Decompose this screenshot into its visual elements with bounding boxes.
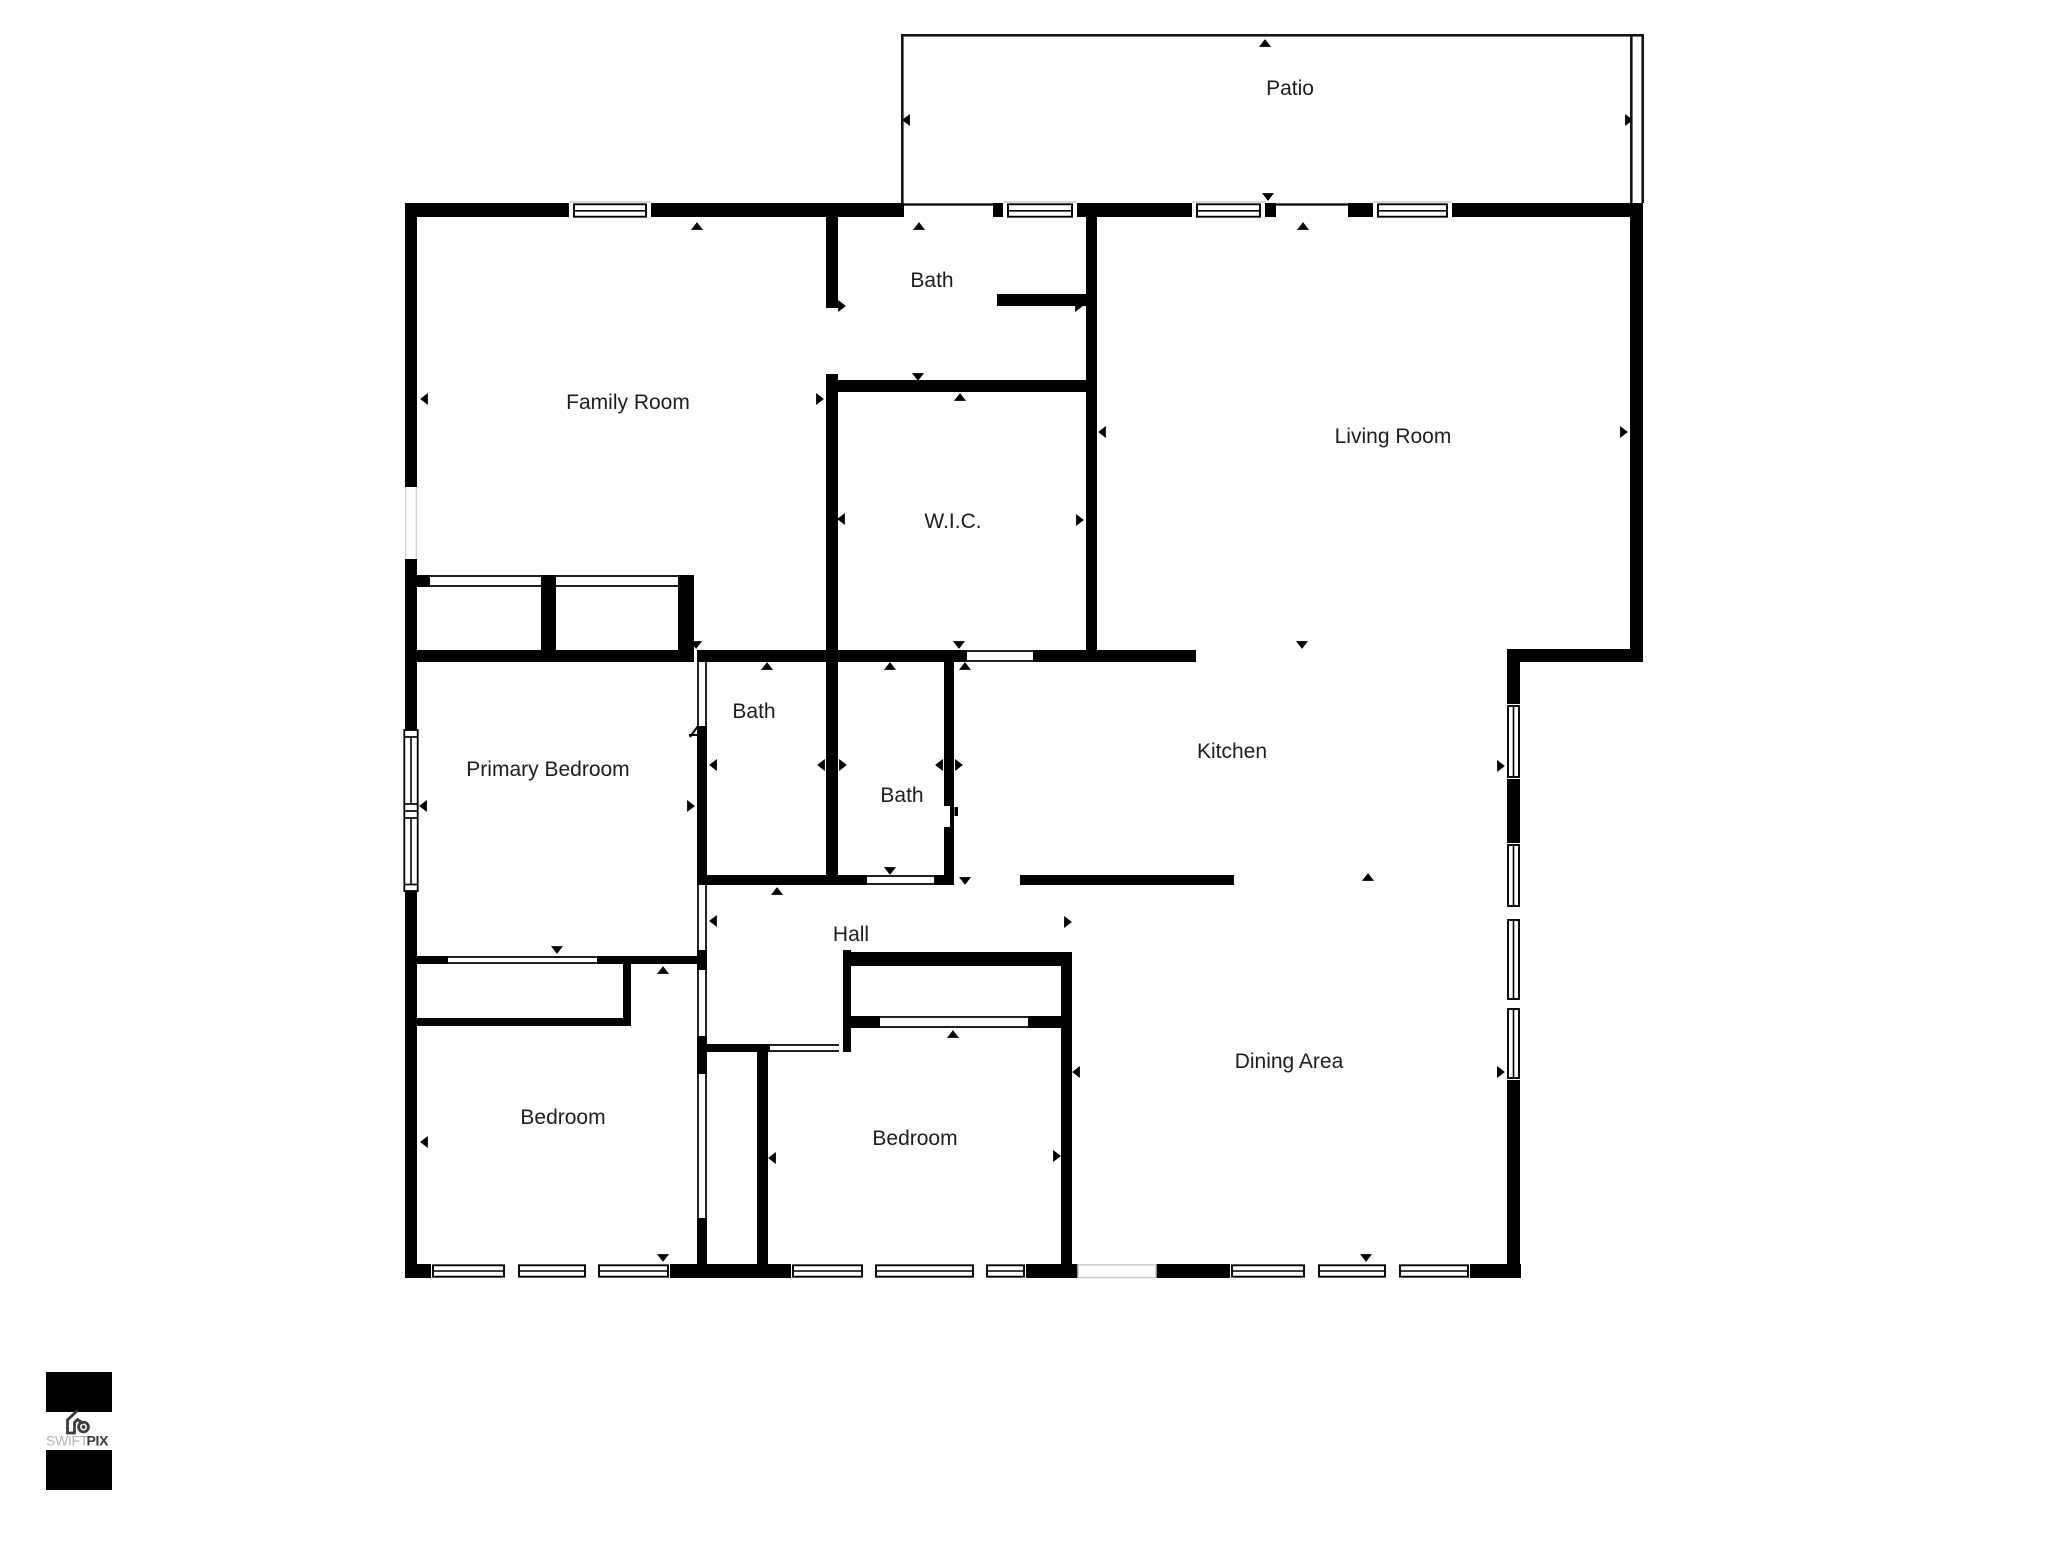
svg-text:Bedroom: Bedroom [872, 1127, 957, 1150]
svg-text:Dining Area: Dining Area [1235, 1050, 1344, 1073]
svg-text:Bedroom: Bedroom [520, 1106, 605, 1129]
svg-text:Bath: Bath [910, 269, 953, 292]
svg-text:PIX: PIX [87, 1433, 110, 1449]
svg-text:Primary Bedroom: Primary Bedroom [466, 758, 629, 781]
svg-text:Bath: Bath [880, 784, 923, 807]
svg-text:Kitchen: Kitchen [1197, 740, 1267, 763]
svg-text:Hall: Hall [833, 923, 869, 946]
svg-text:Patio: Patio [1266, 77, 1314, 100]
svg-text:Family Room: Family Room [566, 391, 690, 414]
svg-text:SWIFT: SWIFT [46, 1433, 89, 1449]
svg-text:Bath: Bath [732, 700, 775, 723]
svg-text:W.I.C.: W.I.C. [924, 510, 981, 533]
svg-text:Living Room: Living Room [1335, 425, 1452, 448]
